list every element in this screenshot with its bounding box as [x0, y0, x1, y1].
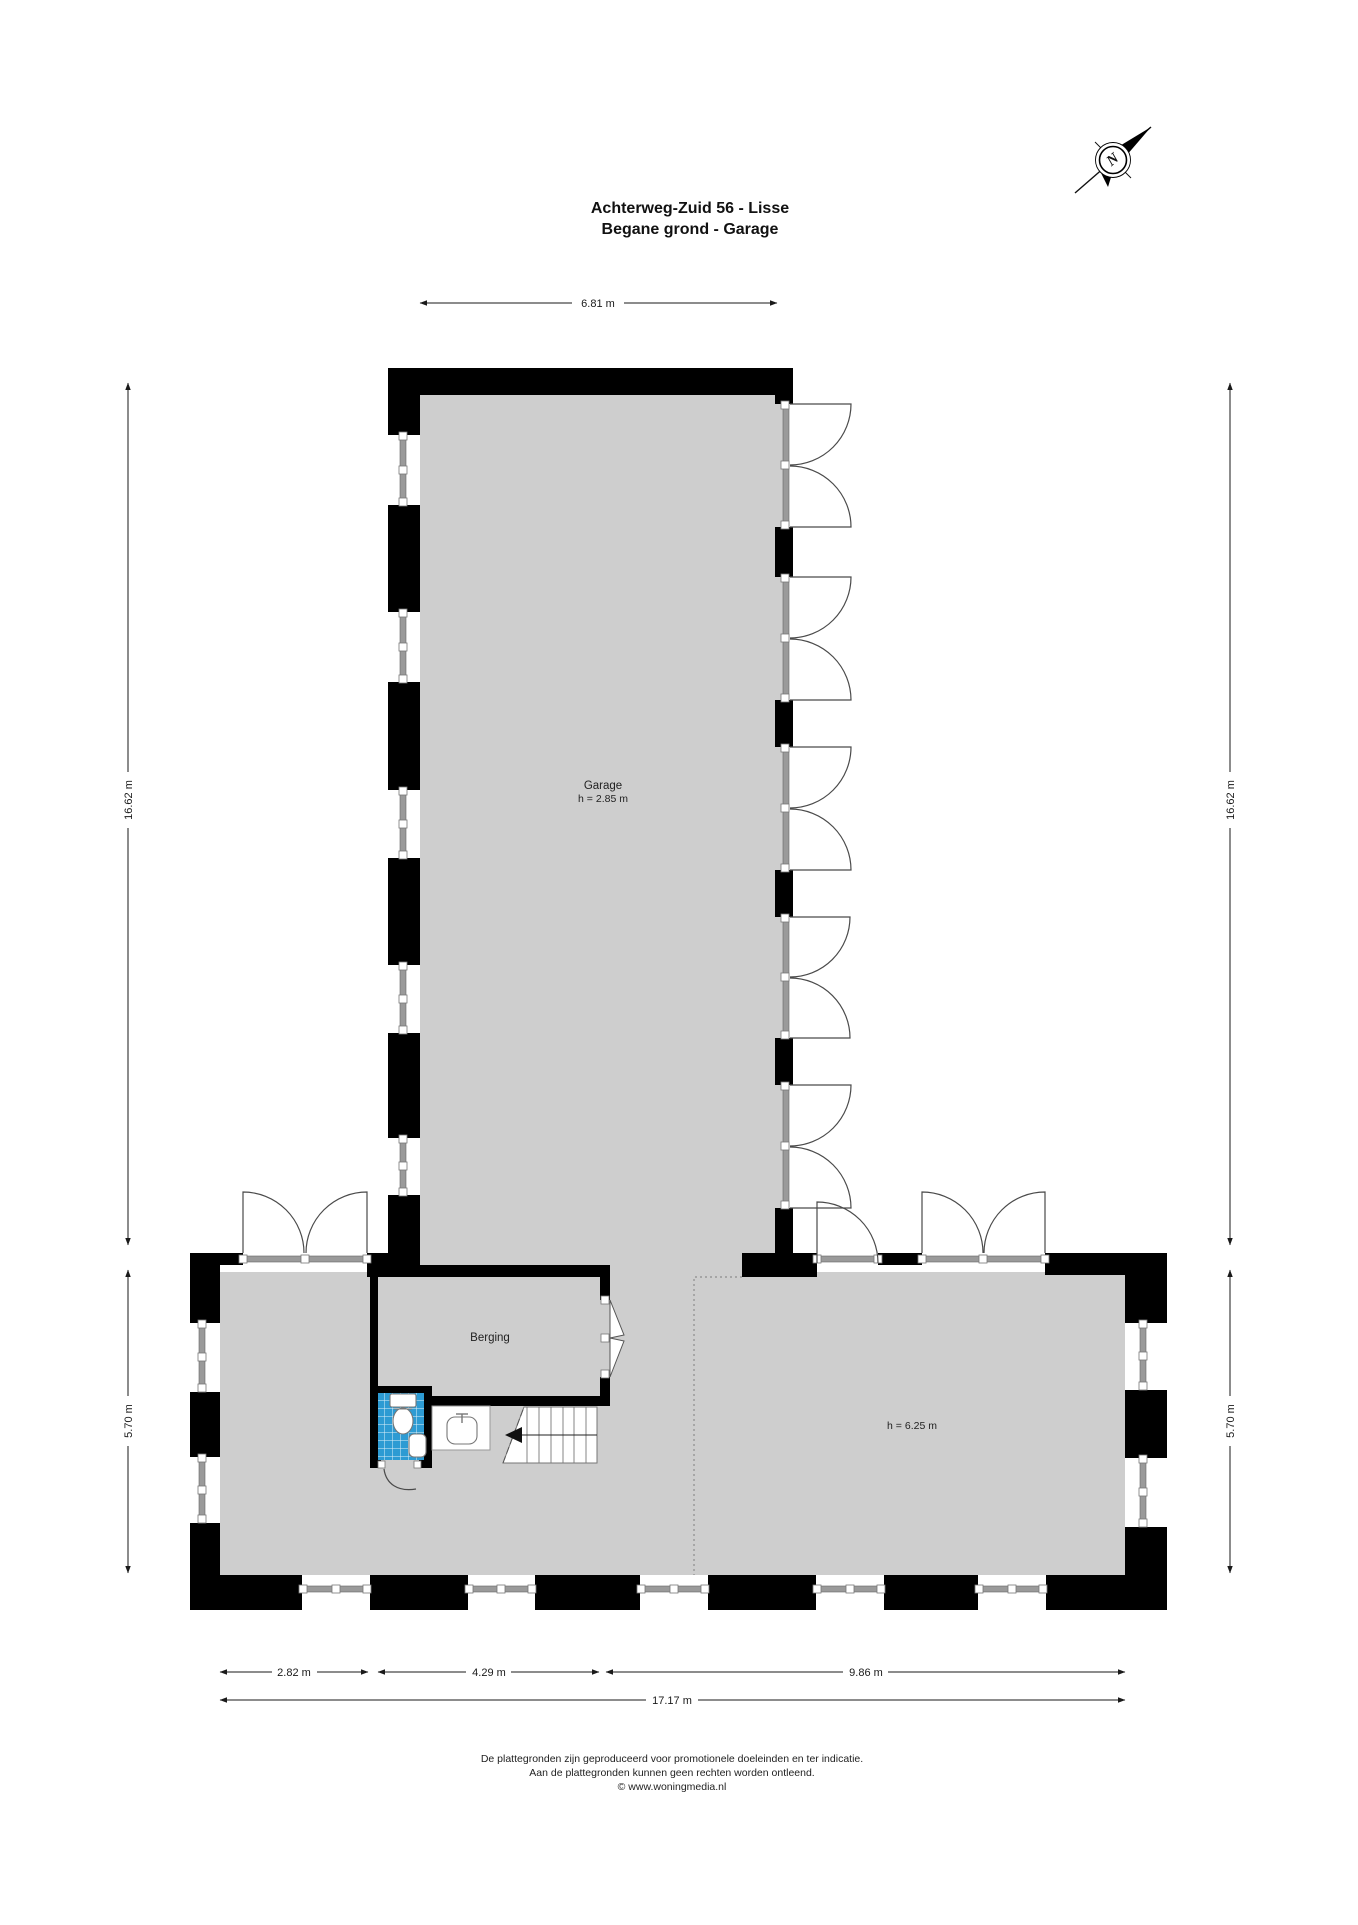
floor-areas [220, 395, 1125, 1575]
window [399, 1135, 407, 1196]
garage-room-label: Garage [584, 780, 622, 792]
double-door [790, 577, 851, 700]
dimension-top-width: 6.81 m [420, 294, 777, 311]
window [198, 1320, 206, 1392]
window [813, 1585, 885, 1593]
north-compass-icon: N [1075, 127, 1151, 193]
sink-room [432, 1406, 490, 1450]
garage-floor [420, 395, 783, 1277]
dimension-bottom-total: 17.17 m [220, 1692, 1125, 1707]
svg-text:4.29 m: 4.29 m [472, 1667, 506, 1679]
hall-floor [220, 1272, 1125, 1575]
window [465, 1585, 536, 1593]
hall-height-label: h = 6.25 m [887, 1420, 937, 1432]
svg-text:2.82 m: 2.82 m [277, 1667, 311, 1679]
svg-text:6.81 m: 6.81 m [581, 298, 615, 310]
window [975, 1585, 1047, 1593]
window [399, 962, 407, 1034]
dimension-right-upper: 16.62 m [1220, 383, 1240, 1245]
window [198, 1454, 206, 1523]
dimension-left-lower: 5.70 m [118, 1270, 138, 1573]
window [399, 432, 407, 506]
sink-icon [409, 1434, 426, 1457]
disclaimer-line-2: Aan de plattegronden kunnen geen rechten… [529, 1767, 814, 1779]
svg-text:17.17 m: 17.17 m [652, 1695, 692, 1707]
double-door [790, 404, 851, 527]
window [299, 1585, 371, 1593]
dimension-right-lower: 5.70 m [1220, 1270, 1240, 1573]
window [399, 609, 407, 683]
window [399, 787, 407, 859]
berging-room-label: Berging [470, 1332, 510, 1344]
window [1139, 1455, 1147, 1527]
window [1139, 1320, 1147, 1390]
washbasin-icon [447, 1414, 477, 1444]
page-subtitle: Begane grond - Garage [602, 221, 779, 238]
svg-text:5.70 m: 5.70 m [123, 1404, 135, 1438]
svg-text:5.70 m: 5.70 m [1225, 1404, 1237, 1438]
window [637, 1585, 709, 1593]
svg-text:9.86 m: 9.86 m [849, 1667, 883, 1679]
double-door [239, 1192, 371, 1263]
svg-text:16.62 m: 16.62 m [1225, 780, 1237, 820]
double-door [790, 917, 850, 1038]
disclaimer-line-1: De plattegronden zijn geproduceerd voor … [481, 1753, 863, 1765]
garage-doors [781, 401, 851, 1209]
garage-height-label: h = 2.85 m [578, 793, 628, 805]
dimension-left-upper: 16.62 m [118, 383, 138, 1245]
floorplan-drawing: Achterweg-Zuid 56 - Lisse Begane grond -… [0, 0, 1358, 1920]
door-frames [781, 401, 789, 1209]
double-door [790, 1085, 851, 1208]
floorplan-page: Achterweg-Zuid 56 - Lisse Begane grond -… [0, 0, 1358, 1920]
dimension-bottom-segments: 2.82 m 4.29 m 9.86 m [220, 1664, 1125, 1679]
svg-text:16.62 m: 16.62 m [123, 780, 135, 820]
double-door [918, 1192, 1049, 1263]
copyright-line: © www.woningmedia.nl [618, 1781, 727, 1793]
page-title: Achterweg-Zuid 56 - Lisse [591, 200, 789, 217]
double-door [790, 747, 851, 870]
door-swing [813, 1202, 882, 1263]
